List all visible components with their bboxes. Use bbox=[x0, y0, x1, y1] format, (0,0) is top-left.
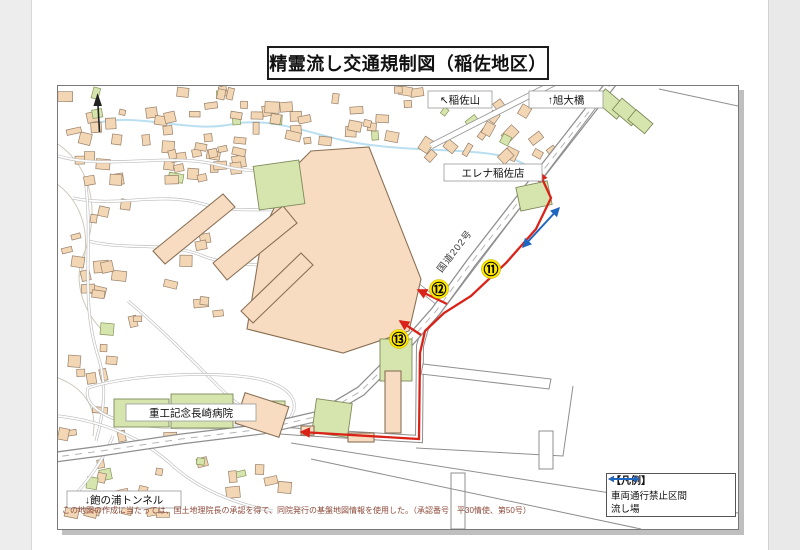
map-label-asahi-bridge: ↑旭大橋 bbox=[529, 91, 603, 108]
badge-⑪: ⑪ bbox=[482, 260, 501, 279]
page-title: 精霊流し交通規制図（稲佐地区） bbox=[267, 46, 549, 80]
map-label-hospital: 重工記念長崎病院 bbox=[126, 404, 256, 421]
svg-text:⑫: ⑫ bbox=[431, 280, 446, 298]
badge-⑫: ⑫ bbox=[430, 280, 449, 299]
svg-text:エレナ稲佐店: エレナ稲佐店 bbox=[462, 167, 525, 180]
legend-item-nagashiba: 流し場 bbox=[611, 501, 731, 514]
badge-⑬: ⑬ bbox=[390, 330, 409, 349]
page: { "page": { "title": "精霊流し交通規制図（稲佐地区）" }… bbox=[0, 0, 800, 550]
svg-text:↑旭大橋: ↑旭大橋 bbox=[548, 94, 585, 107]
legend-arrow-icon bbox=[607, 474, 641, 484]
page-margin-left bbox=[0, 0, 32, 550]
legend: 【凡例】 車両通行禁止区間 流し場 bbox=[606, 473, 736, 517]
svg-text:↖稲佐山: ↖稲佐山 bbox=[440, 94, 480, 107]
svg-text:重工記念長崎病院: 重工記念長崎病院 bbox=[149, 407, 233, 420]
legend-item-label: 車両通行禁止区間 bbox=[611, 488, 687, 502]
map-canvas: ⑪⑫⑬ ↖稲佐山↑旭大橋エレナ稲佐店重工記念長崎病院↓飽の浦トンネル国道202号 bbox=[58, 86, 738, 529]
map: ⑪⑫⑬ ↖稲佐山↑旭大橋エレナ稲佐店重工記念長崎病院↓飽の浦トンネル国道202号… bbox=[57, 85, 739, 530]
svg-text:⑪: ⑪ bbox=[483, 260, 498, 278]
legend-item-label: 流し場 bbox=[611, 501, 640, 515]
map-label-inasayama: ↖稲佐山 bbox=[428, 91, 492, 108]
svg-text:⑬: ⑬ bbox=[391, 330, 406, 348]
blue-route bbox=[523, 208, 559, 247]
page-margin-right bbox=[768, 0, 800, 550]
legend-item-vehicle-ban: 車両通行禁止区間 bbox=[611, 488, 731, 501]
map-attribution: この地図の作成に当たっては、国土地理院長の承認を得て、同院発行の基盤地図情報を使… bbox=[62, 505, 622, 516]
map-label-elena-store: エレナ稲佐店 bbox=[444, 164, 542, 181]
